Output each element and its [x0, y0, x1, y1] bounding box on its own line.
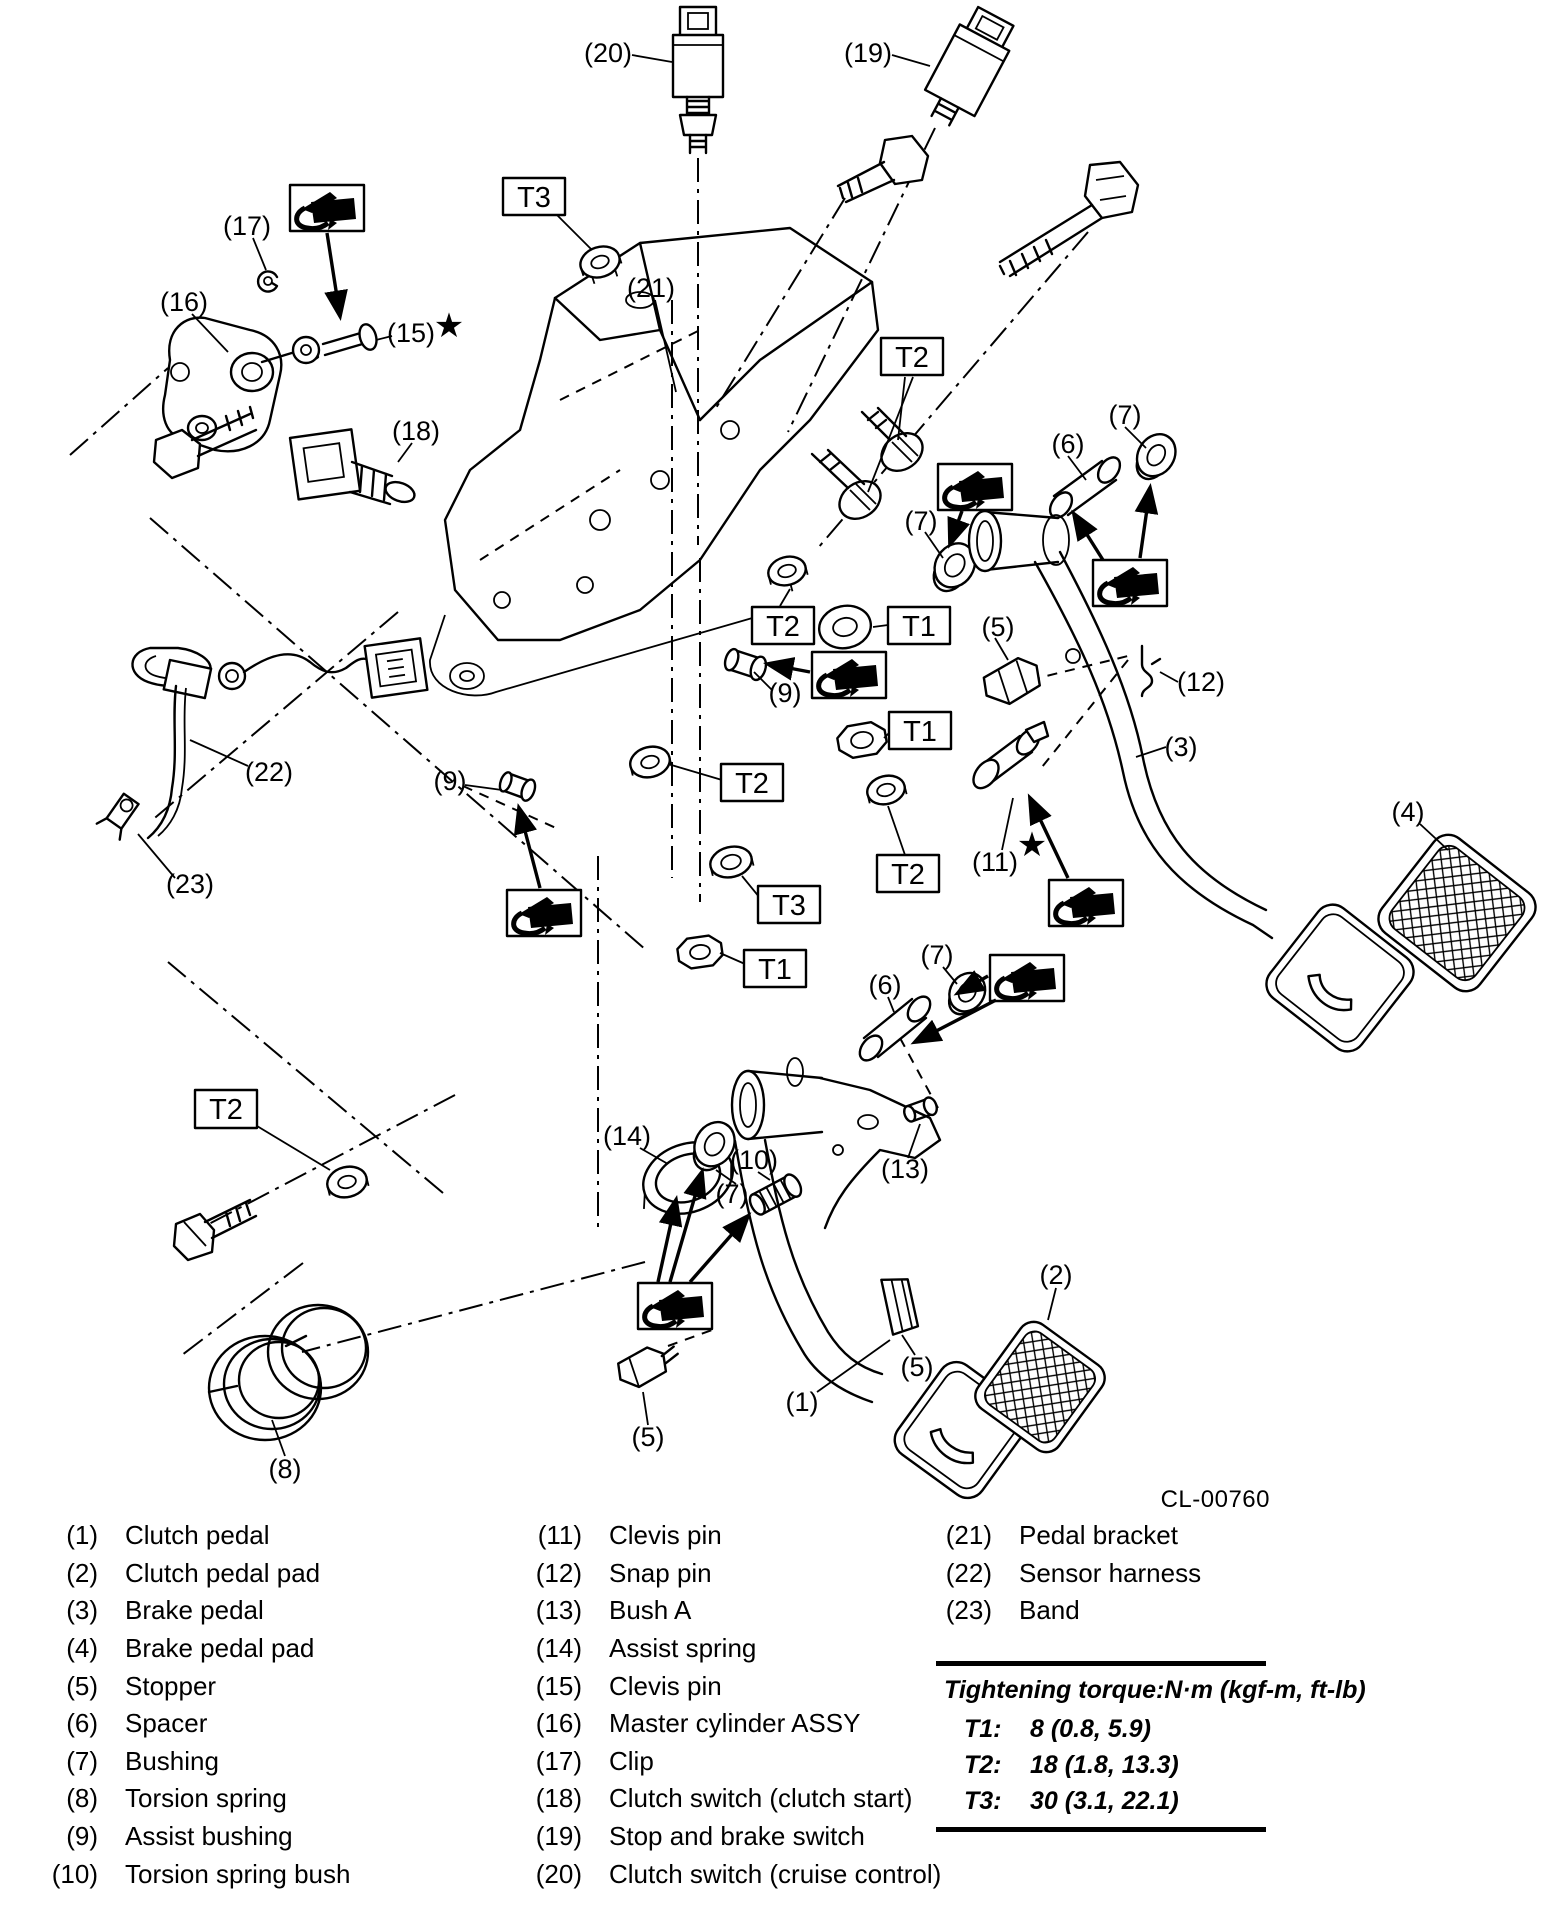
callout-5: (5)	[982, 612, 1015, 642]
bushing-bottom-right	[940, 966, 992, 1021]
exploded-parts-diagram-page: T3 T2 T2 T1 T1 T2 T2 T3 T1 T2 (20) (19) …	[0, 0, 1568, 1910]
legend-column-1: (1)Clutch pedal (2)Clutch pedal pad (3)B…	[46, 1517, 350, 1893]
callout-17: (17)	[223, 211, 271, 241]
grease-symbol	[938, 464, 1012, 510]
flange-nut	[324, 1163, 370, 1202]
callout-15: (15)	[387, 318, 435, 348]
callout-16: (16)	[160, 287, 208, 317]
hex-nut	[836, 720, 889, 760]
stopper-right	[979, 654, 1044, 709]
grease-symbol	[812, 652, 886, 698]
callout-23: (23)	[166, 869, 214, 899]
callout-7: (7)	[1109, 400, 1142, 430]
band	[97, 791, 143, 840]
legend-item: (19)Stop and brake switch	[530, 1818, 941, 1856]
torque-box-t3: T3	[758, 886, 820, 923]
torque-box-t2: T2	[721, 764, 783, 801]
callout-18: (18)	[392, 416, 440, 446]
grease-symbol	[1049, 880, 1123, 926]
grease-symbol	[290, 185, 364, 231]
grease-symbol	[1093, 560, 1167, 606]
torque-box-t2: T2	[877, 855, 939, 892]
callout-4: (4)	[1392, 797, 1425, 827]
flange-nut	[627, 743, 673, 782]
callout-9: (9)	[769, 678, 802, 708]
legend-item: (14)Assist spring	[530, 1630, 941, 1668]
legend-item: (2)Clutch pedal pad	[46, 1555, 350, 1593]
legend-item: (6)Spacer	[46, 1705, 350, 1743]
svg-text:T2: T2	[735, 768, 769, 800]
bracket-bolt-short	[838, 136, 928, 202]
legend-column-3: (21)Pedal bracket (22)Sensor harness (23…	[940, 1517, 1201, 1630]
flange-nut	[864, 772, 908, 808]
callout-1: (1)	[786, 1387, 819, 1417]
bushing-top-right	[1127, 427, 1183, 487]
washer-ring	[815, 601, 875, 653]
legend-item: (12)Snap pin	[530, 1555, 941, 1593]
torque-row-t2: T2:18 (1.8, 13.3)	[936, 1747, 1266, 1783]
legend-item: (4)Brake pedal pad	[46, 1630, 350, 1668]
callout-9: (9)	[434, 766, 467, 796]
legend-item: (17)Clip	[530, 1743, 941, 1781]
torque-box-t2: T2	[195, 1090, 257, 1128]
svg-text:T1: T1	[758, 954, 792, 986]
figure-code: CL-00760	[1100, 1486, 1270, 1514]
hex-nut	[676, 934, 724, 970]
legend-item: (18)Clutch switch (clutch start)	[530, 1780, 941, 1818]
legend-item: (23)Band	[940, 1592, 1201, 1630]
callout-11: (11)	[972, 847, 1018, 877]
clevis-pin-11	[968, 722, 1048, 793]
torque-row-t3: T3:30 (3.1, 22.1)	[936, 1783, 1266, 1819]
torque-row-t1: T1:8 (0.8, 5.9)	[936, 1711, 1266, 1747]
callout-5: (5)	[901, 1352, 934, 1382]
assist-bushing-left	[497, 770, 537, 803]
legend-item: (7)Bushing	[46, 1743, 350, 1781]
legend-item: (10)Torsion spring bush	[46, 1855, 350, 1893]
legend-item: (21)Pedal bracket	[940, 1517, 1201, 1555]
callout-3: (3)	[1165, 732, 1198, 762]
svg-text:T1: T1	[902, 611, 936, 643]
callout-13: (13)	[881, 1154, 929, 1184]
construction-lines	[70, 128, 1128, 1428]
svg-text:T2: T2	[895, 342, 929, 374]
legend-item: (15)Clevis pin	[530, 1667, 941, 1705]
callout-6: (6)	[1052, 429, 1085, 459]
grease-symbol	[507, 890, 581, 936]
callout-8: (8)	[269, 1454, 302, 1484]
clutch-switch-cruise-control	[673, 7, 723, 153]
torque-box-t1: T1	[888, 607, 950, 644]
flange-nut	[707, 842, 755, 881]
torque-box-t1: T1	[744, 950, 806, 987]
callout-6: (6)	[869, 970, 902, 1000]
legend-column-2: (11)Clevis pin (12)Snap pin (13)Bush A (…	[530, 1517, 941, 1893]
bush-a	[902, 1096, 939, 1124]
bracket-bolt-long	[1000, 162, 1138, 276]
clip	[258, 272, 277, 292]
callout-21: (21)	[627, 273, 675, 303]
callout-7: (7)	[716, 1179, 749, 1209]
legend-item: (8)Torsion spring	[46, 1780, 350, 1818]
tightening-torque-table: Tightening torque:N·m (kgf-m, ft-lb) T1:…	[936, 1661, 1266, 1832]
master-cylinder-assy	[163, 318, 319, 452]
legend-item: (16)Master cylinder ASSY	[530, 1705, 941, 1743]
flange-nut	[765, 553, 811, 597]
assist-bushing-mid	[722, 646, 768, 681]
grease-symbol	[638, 1283, 712, 1329]
callout-14: (14)	[603, 1121, 651, 1151]
star-icon: ★	[434, 306, 464, 346]
legend-item: (20)Clutch switch (cruise control)	[530, 1855, 941, 1893]
svg-text:T2: T2	[766, 611, 800, 643]
stopper-clutch-right	[881, 1275, 918, 1335]
callout-7: (7)	[921, 940, 954, 970]
legend-item: (13)Bush A	[530, 1592, 941, 1630]
svg-text:T2: T2	[891, 859, 925, 891]
callout-10: (10)	[730, 1145, 778, 1175]
callout-labels: (20) (19) (17) (16) (15) (18) (21) (7) (…	[160, 38, 1425, 1484]
torque-box-t2: T2	[881, 338, 943, 375]
svg-text:T1: T1	[903, 716, 937, 748]
callout-20: (20)	[584, 38, 632, 68]
legend-item: (3)Brake pedal	[46, 1592, 350, 1630]
callout-22: (22)	[245, 757, 293, 787]
torque-box-t1: T1	[889, 712, 951, 749]
spacer-tube-bottom	[855, 992, 934, 1064]
svg-text:T3: T3	[517, 182, 551, 214]
star-icon: ★	[1017, 825, 1047, 865]
torsion-spring	[209, 1305, 368, 1440]
callout-5: (5)	[632, 1422, 665, 1452]
snap-pin	[1142, 646, 1160, 696]
legend-item: (1)Clutch pedal	[46, 1517, 350, 1555]
callout-7: (7)	[905, 506, 938, 536]
legend-item: (5)Stopper	[46, 1667, 350, 1705]
spacer-tube-top	[1046, 453, 1125, 521]
legend-item: (22)Sensor harness	[940, 1555, 1201, 1593]
callout-2: (2)	[1040, 1260, 1073, 1290]
callout-19: (19)	[844, 38, 892, 68]
svg-text:T3: T3	[772, 890, 806, 922]
leader-lines	[138, 55, 1448, 1456]
bracket-bolt-bottom	[174, 1200, 256, 1260]
legend-item: (11)Clevis pin	[530, 1517, 941, 1555]
callout-12: (12)	[1177, 667, 1225, 697]
stopper-clutch-left	[614, 1340, 683, 1391]
grease-symbol	[990, 955, 1064, 1001]
legend-item: (9)Assist bushing	[46, 1818, 350, 1856]
stop-and-brake-switch	[916, 3, 1021, 133]
torque-table-title: Tightening torque:N·m (kgf-m, ft-lb)	[936, 1672, 1266, 1711]
sensor-harness	[132, 638, 427, 838]
svg-text:T2: T2	[209, 1094, 243, 1126]
torque-box-t3: T3	[503, 178, 565, 215]
torque-box-t2: T2	[752, 607, 814, 644]
